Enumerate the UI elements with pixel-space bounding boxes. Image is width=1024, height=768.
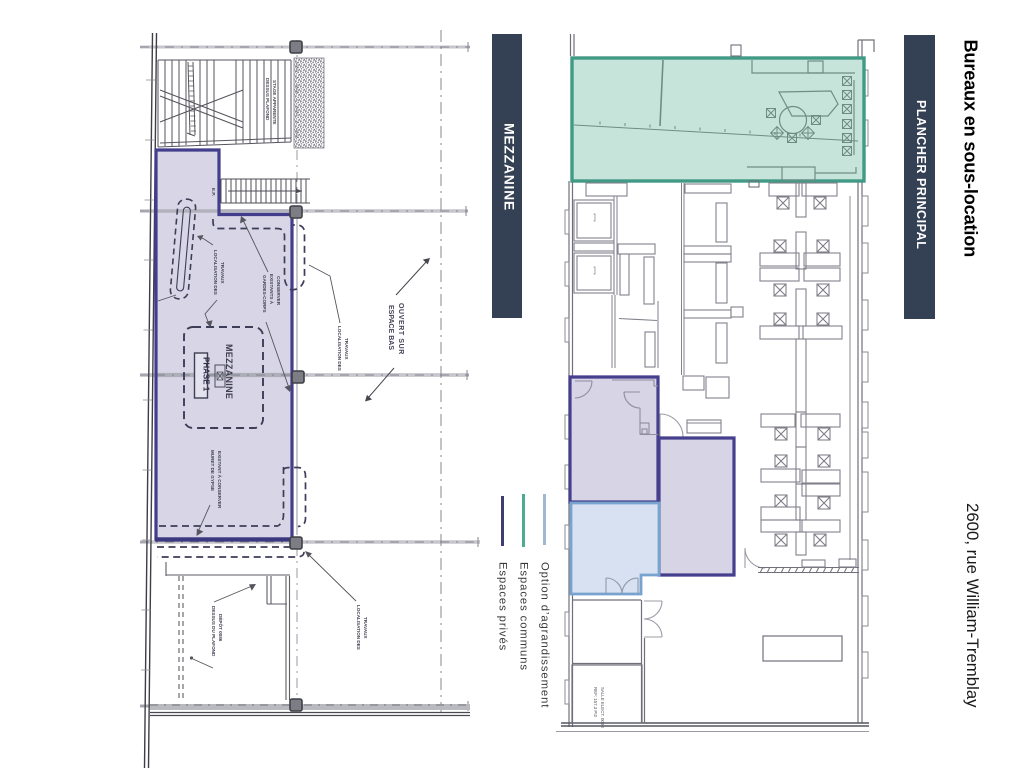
svg-text:STAGE APPARENTE: STAGE APPARENTE xyxy=(272,80,277,125)
svg-text:REF: 157.3 PI2: REF: 157.3 PI2 xyxy=(593,687,598,718)
svg-text:SALLE ELECT. 0088: SALLE ELECT. 0088 xyxy=(600,687,605,728)
svg-text:EXISTANTS À: EXISTANTS À xyxy=(269,274,275,305)
svg-text:Espaces privés: Espaces privés xyxy=(497,562,509,651)
svg-text:CONSERVER: CONSERVER xyxy=(276,276,281,306)
svg-text:EXISTANT À CONSERVER: EXISTANT À CONSERVER xyxy=(217,451,223,509)
svg-text:Espaces communs: Espaces communs xyxy=(518,562,530,671)
svg-text:DÉPÔT 0086: DÉPÔT 0086 xyxy=(218,614,225,642)
svg-text:DESSUS PLAFOND: DESSUS PLAFOND xyxy=(265,78,270,121)
svg-text:PLANCHER PRINCIPAL: PLANCHER PRINCIPAL xyxy=(914,100,928,249)
svg-text:TRAVAUX: TRAVAUX xyxy=(220,262,225,284)
svg-text:TRAVAUX: TRAVAUX xyxy=(344,338,349,360)
svg-text:TRAVAUX: TRAVAUX xyxy=(363,617,368,639)
svg-text:PHASE 1: PHASE 1 xyxy=(202,357,211,392)
svg-text:MEZZANINE: MEZZANINE xyxy=(502,123,518,211)
svg-text:2600, rue William-Tremblay: 2600, rue William-Tremblay xyxy=(963,503,982,708)
svg-text:OUVERT SUR: OUVERT SUR xyxy=(397,303,404,355)
svg-text:LOCALISATION DES: LOCALISATION DES xyxy=(356,605,361,650)
svg-text:DESSUS DU PLAFOND: DESSUS DU PLAFOND xyxy=(211,606,216,657)
svg-text:Option d’agrandissement: Option d’agrandissement xyxy=(539,562,551,708)
svg-text:ESPACE BAS: ESPACE BAS xyxy=(387,305,394,350)
svg-text:MURET DE GYPSE: MURET DE GYPSE xyxy=(210,450,215,491)
svg-text:Bureaux en sous-location: Bureaux en sous-location xyxy=(961,40,981,258)
svg-text:LOCALISATION DES: LOCALISATION DES xyxy=(213,250,218,295)
svg-text:GARDES-CORPS: GARDES-CORPS xyxy=(262,275,267,313)
svg-text:LOCALISATION DES: LOCALISATION DES xyxy=(337,326,342,371)
svg-text:E.P.: E.P. xyxy=(211,188,216,196)
